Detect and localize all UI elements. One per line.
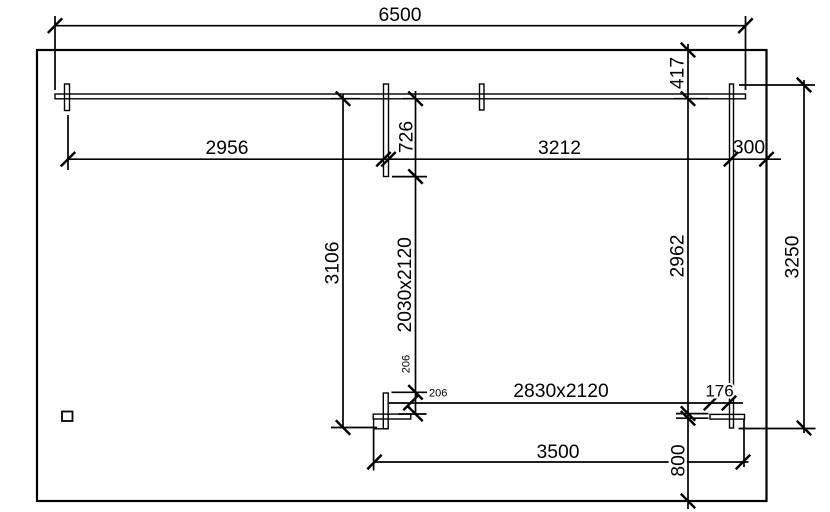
svg-text:726: 726 [397,121,418,153]
svg-text:6500: 6500 [379,5,422,26]
svg-text:3212: 3212 [538,138,581,159]
svg-text:206: 206 [401,355,413,373]
svg-text:2830x2120: 2830x2120 [513,381,608,402]
svg-text:2956: 2956 [206,138,249,159]
svg-text:206: 206 [429,388,447,400]
svg-text:3500: 3500 [537,442,580,463]
svg-text:3250: 3250 [783,236,804,279]
svg-text:176: 176 [705,381,733,400]
svg-text:2030x2120: 2030x2120 [395,237,416,332]
svg-text:300: 300 [733,138,765,159]
svg-text:3106: 3106 [323,242,344,285]
svg-text:2962: 2962 [668,235,689,278]
svg-text:800: 800 [669,444,690,476]
svg-text:417: 417 [668,57,689,89]
